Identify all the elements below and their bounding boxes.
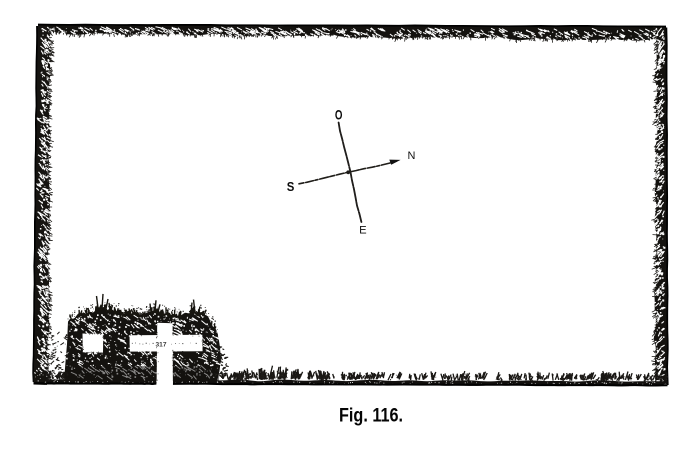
svg-text:317: 317: [156, 342, 167, 349]
svg-text:Fig. 116.: Fig. 116.: [339, 406, 403, 427]
svg-text:S: S: [287, 180, 295, 194]
svg-text:E: E: [359, 224, 367, 236]
svg-text:N: N: [408, 150, 416, 162]
svg-text:O: O: [335, 107, 343, 122]
